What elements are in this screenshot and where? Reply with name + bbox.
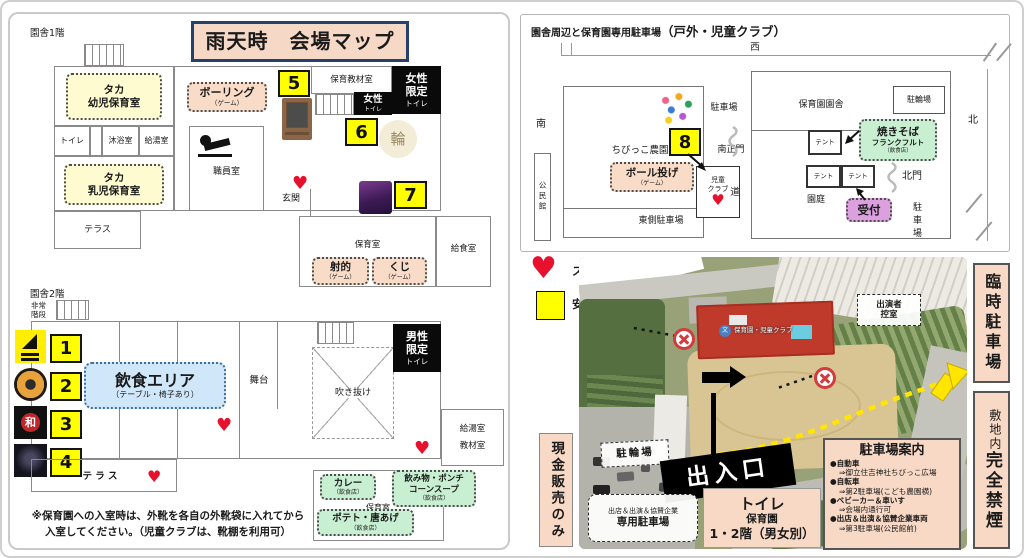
f2-eating-area-sub: （テーブル・椅子あり） xyxy=(111,390,199,400)
f1-terrace: テラス xyxy=(54,211,141,249)
outdoor-title: 園舎周辺と保育園専用駐車場（戸外・児童クラブ） xyxy=(531,21,891,37)
school-map-icon-char: 文 xyxy=(722,327,728,334)
no-smoking-box: 敷地内完全禁煙 xyxy=(973,391,1010,549)
stamp-heart-f2b: ♥ xyxy=(414,440,430,458)
f2-emergency-stairs-label: 非常 階段 xyxy=(31,301,55,319)
f2-terrace-label: テ ラ ス xyxy=(60,471,140,483)
entrance-arrow-head xyxy=(730,366,746,388)
f1-staff-label: 職員室 xyxy=(189,167,264,178)
f1-lottery-box: くじ （ゲーム） xyxy=(372,257,427,285)
f2-drink-label: 飲み物・ポンチ コーンスープ xyxy=(404,474,464,495)
f2-men-only-toilet: 男性 限定 トイレ xyxy=(393,324,441,372)
f2-curry-sub: （飲食店） xyxy=(333,489,363,496)
vendor-parking-line2: 専用駐車場 xyxy=(617,516,670,529)
guide-item-head: ●出店＆出演＆協賛企業車両 xyxy=(830,514,954,523)
tent-box-3: テント xyxy=(841,165,875,188)
f1-bath-label: 沐浴室 xyxy=(109,136,133,146)
yakisoba-label-2: フランクフルト xyxy=(872,138,925,147)
f1-women-toilet: 女性 トイレ xyxy=(354,92,392,115)
f1-shooting-sub: （ゲーム） xyxy=(326,274,356,281)
legend-heart-icon: ♥ xyxy=(530,254,557,284)
gate-banner-label: 出入口 xyxy=(684,453,771,492)
stairs-f1-mid xyxy=(315,94,354,115)
f1-infant-room-label: タカ 乳児保育室 xyxy=(88,172,141,198)
entrance-bar xyxy=(711,393,716,455)
floor2-label: 園舎2階 xyxy=(30,289,90,301)
cash-only-label: 現金販売のみ xyxy=(548,441,564,540)
reception-label: 受付 xyxy=(858,203,881,217)
vendor-logo-1-bar2 xyxy=(21,358,39,361)
compass-north: 北 xyxy=(965,115,981,127)
right-road-line xyxy=(987,69,988,241)
f2-potato-box: ポテト・唐あげ （飲食店） xyxy=(317,509,414,536)
point-num-7: 7 xyxy=(394,181,427,209)
men-only-main: 男性 限定 xyxy=(406,330,428,357)
vendor-logo-1-triangle xyxy=(22,334,37,349)
right-road-slash2 xyxy=(975,221,992,240)
legend-yellow-icon xyxy=(536,291,565,320)
point-num-1: 1 xyxy=(50,334,82,363)
f1-nursery-label: 保育室 xyxy=(299,240,436,250)
cash-only-box: 現金販売のみ xyxy=(539,433,573,547)
f2-potato-label: ポテト・唐あげ xyxy=(332,513,399,525)
f1-entrance-label: 玄関 xyxy=(275,194,307,205)
f2-wall-4 xyxy=(277,321,278,409)
women-toilet-main: 女性 xyxy=(363,94,382,106)
photo-roof-unit xyxy=(729,315,747,325)
f1-lottery-label: くじ xyxy=(389,261,410,274)
stamp-heart-f2c: ♥ xyxy=(147,469,161,485)
page-title: 雨天時 会場マップ xyxy=(191,21,409,62)
temp-parking-label: 臨時駐車場 xyxy=(982,273,1002,373)
dressing-room-label: 出演者 控室 xyxy=(876,300,902,321)
north-parking-label: 駐車場 xyxy=(905,195,921,247)
signboard-board xyxy=(286,102,308,128)
f2-drink-box: 飲み物・ポンチ コーンスープ （飲食店） xyxy=(392,470,476,507)
tent-box-2: テント xyxy=(806,165,841,188)
yakisoba-label: 焼きそば xyxy=(877,126,919,139)
car xyxy=(593,485,610,494)
parking-area-label: 駐車場 xyxy=(705,103,743,114)
f2-eating-area-label: 飲食エリア xyxy=(115,371,195,391)
men-only-sub: トイレ xyxy=(406,357,429,366)
south-gate-label: 南正門 xyxy=(713,145,749,156)
right-road-slash3 xyxy=(996,43,1011,61)
reception-box: 受付 xyxy=(846,198,892,222)
no-smoking-line1: 敷地内 xyxy=(981,409,1002,451)
left-panel: 園舎1階 雨天時 会場マップ タカ 幼児保育室 トイレ 沐浴室 給湯室 タカ 乳… xyxy=(8,12,510,550)
f1-women-only-toilet: 女性 限定 トイレ xyxy=(392,66,441,114)
f1-bowling-box: ボーリング （ゲーム） xyxy=(187,82,267,112)
signboard-photo xyxy=(282,98,312,140)
f1-kitchen-label: 給食室 xyxy=(436,244,491,254)
wa-logo-char: 和 xyxy=(21,413,40,432)
tent-label-1: テント xyxy=(815,139,835,147)
f1-corridor-wall xyxy=(310,189,311,216)
women-only-main: 女性 限定 xyxy=(406,72,428,99)
f2-wall-3 xyxy=(239,321,240,459)
f1-toddler-room-label: タカ 幼児保育室 xyxy=(88,84,141,110)
women-toilet-sub: トイレ xyxy=(364,106,382,113)
rin-logo-char: 輪 xyxy=(390,130,405,148)
vendor-parking-line1: 出店＆出演＆協賛企業 xyxy=(608,507,678,516)
point-num-5: 5 xyxy=(278,70,310,97)
chibikko-logo xyxy=(658,89,696,127)
top-road-slash xyxy=(983,43,997,62)
signboard-leg xyxy=(285,132,309,135)
parking-guide-title: 駐車場案内 xyxy=(859,443,924,459)
flyer-canvas: 園舎1階 雨天時 会場マップ タカ 幼児保育室 トイレ 沐浴室 給湯室 タカ 乳… xyxy=(0,0,1024,558)
stairs-f2-top xyxy=(317,322,354,344)
f1-terrace-label: テラス xyxy=(84,225,111,236)
toilet-info-line3: 1・2階（男女別） xyxy=(710,526,815,541)
f1-materials-label: 保育教材室 xyxy=(330,75,373,85)
f1-infant-room-box: タカ 乳児保育室 xyxy=(64,164,164,205)
stamp-heart-club: ♥ xyxy=(711,193,724,208)
staffroom-logo xyxy=(198,133,234,159)
f1-lottery-sub: （ゲーム） xyxy=(385,274,415,281)
women-only-sub: トイレ xyxy=(405,99,428,108)
dressing-room-box: 出演者 控室 xyxy=(857,294,921,326)
point-num-6: 6 xyxy=(345,118,378,146)
building-map-label: 保育園・児童クラブ xyxy=(734,327,834,335)
guide-item-head: ●ベビーカー＆車いす xyxy=(830,496,954,505)
guide-item-sub: ⇒第2駐車場(こども農園横) xyxy=(830,487,954,496)
f2-atrium-label: 吹き抜け xyxy=(333,388,373,399)
point-num-8: 8 xyxy=(669,128,701,156)
f2-right-rooms-label: 給湯室 教材室 xyxy=(460,421,486,453)
north-gate-label: 北門 xyxy=(896,171,928,183)
top-road-line xyxy=(561,55,991,56)
rin-logo: 輪 xyxy=(379,120,417,158)
yakisoba-sub: （飲食店） xyxy=(884,148,912,155)
point-num-2: 2 xyxy=(50,372,82,401)
vendor-parking-box: 出店＆出演＆協賛企業 専用駐車場 xyxy=(588,494,698,542)
guide-item-sub: ⇒会場内通行可 xyxy=(830,505,954,514)
ball-game-label: ボール投げ xyxy=(626,167,679,180)
point-num-3: 3 xyxy=(50,410,82,439)
bike-parking-box: 駐輪場 xyxy=(893,86,945,114)
outdoor-map: 園舎周辺と保育園専用駐車場（戸外・児童クラブ） 西 南 公民館 駐車場 ちびっこ… xyxy=(520,14,1010,252)
f1-bowling-sub: （ゲーム） xyxy=(211,100,243,108)
photo-bike-parking-label: 駐輪場 xyxy=(616,446,654,461)
east-parking-label: 東側駐車場 xyxy=(627,216,695,227)
outdoor-title-1: 園舎周辺と保育園専用駐車場 xyxy=(531,28,661,39)
f2-potato-sub: （飲食店） xyxy=(350,525,380,532)
vendor-logo-1-bar xyxy=(21,353,39,356)
toilet-info-box: トイレ 保育園 1・2階（男女別） xyxy=(703,488,821,548)
f2-curry-label: カレー xyxy=(334,478,363,490)
no-entry-icon-2 xyxy=(814,367,836,389)
entry-note: ※保育園への入室時は、外靴を各自の外靴袋に入れてから 入室してください。（児童ク… xyxy=(22,508,314,541)
right-road-slash1 xyxy=(965,193,982,212)
tent-label-3: テント xyxy=(848,173,868,181)
farm-inner-wall xyxy=(563,208,696,209)
top-road-tick2 xyxy=(571,43,572,56)
f1-room-gap xyxy=(90,126,102,156)
guide-item-sub: ⇒第3駐車場(公民館前) xyxy=(830,524,954,533)
f2-eating-area: 飲食エリア （テーブル・椅子あり） xyxy=(84,362,226,409)
no-entry-icon-1 xyxy=(673,328,695,350)
toilet-info-line2: 保育園 xyxy=(746,513,778,526)
f1-room-hotwater: 給湯室 xyxy=(139,126,174,156)
stamp-heart-f1: ♥ xyxy=(292,175,308,193)
farm-label: ちびっこ農園 xyxy=(603,145,677,157)
guide-item-sub: ⇒御立住吉神社ちびっこ広場 xyxy=(830,468,954,477)
community-hall: 公民館 xyxy=(534,153,551,241)
f2-right-rooms: 給湯室 教材室 xyxy=(441,409,504,466)
top-road-tick1 xyxy=(561,43,562,56)
vendor-logo-3: 和 xyxy=(14,406,47,439)
community-hall-label: 公民館 xyxy=(538,181,547,213)
playground-label: 園庭 xyxy=(801,195,831,206)
f1-room-materials: 保育教材室 xyxy=(311,66,392,94)
floor1-label: 園舎1階 xyxy=(30,28,90,40)
bike-parking-label: 駐輪場 xyxy=(907,95,931,105)
outdoor-title-2: （戸外・児童クラブ） xyxy=(661,24,786,39)
stairs-f2-left xyxy=(56,300,89,320)
vendor-logo-2 xyxy=(14,368,47,401)
guide-item-head: ●自転車 xyxy=(830,477,954,486)
f1-toilet-label: トイレ xyxy=(60,136,84,146)
ball-game-box: ボール投げ （ゲーム） xyxy=(610,162,694,192)
staffroom-logo-shape3 xyxy=(198,154,232,157)
ensha-label: 保育園園舎 xyxy=(789,100,853,111)
vendor-logo-7 xyxy=(359,181,392,214)
compass-west: 西 xyxy=(747,42,763,54)
road-label: 道 xyxy=(728,187,742,199)
f2-drink-sub: （飲食店） xyxy=(419,495,449,502)
f1-shooting-label: 射的 xyxy=(330,261,351,274)
f1-bowling-label: ボーリング xyxy=(200,86,255,99)
f1-shooting-box: 射的 （ゲーム） xyxy=(312,257,369,285)
tent-label-2: テント xyxy=(814,173,834,181)
school-map-icon: 文 xyxy=(719,325,731,337)
guide-item-head: ●自動車 xyxy=(830,459,954,468)
page-title-text: 雨天時 会場マップ xyxy=(206,29,395,53)
stairs-f1-top xyxy=(84,44,124,66)
yakisoba-box: 焼きそば フランクフルト （飲食店） xyxy=(859,119,937,161)
f2-curry-box: カレー （飲食店） xyxy=(320,474,376,500)
ball-game-sub: （ゲーム） xyxy=(637,180,667,187)
f1-toddler-room-box: タカ 幼児保育室 xyxy=(66,73,162,120)
car xyxy=(617,471,635,481)
f1-hotwater-label: 給湯室 xyxy=(145,136,169,146)
f1-room-bath: 沐浴室 xyxy=(102,126,139,156)
no-smoking-line2: 完全禁煙 xyxy=(981,451,1002,531)
stamp-heart-f2a: ♥ xyxy=(216,417,232,435)
compass-south: 南 xyxy=(533,119,549,131)
f2-atrium: 吹き抜け xyxy=(312,347,394,439)
entrance-arrow-body xyxy=(702,372,730,383)
vendor-logo-1 xyxy=(15,330,46,363)
parking-guide-box: 駐車場案内 ●自動車 ⇒御立住吉神社ちびっこ広場 ●自転車 ⇒第2駐車場(こども… xyxy=(823,438,961,550)
toilet-info-line1: トイレ xyxy=(739,495,784,513)
f1-room-toilet: トイレ xyxy=(54,126,90,156)
temp-parking-box: 臨時駐車場 xyxy=(973,263,1010,383)
tent-box-1: テント xyxy=(808,130,842,155)
f2-stage-label: 舞台 xyxy=(243,375,275,387)
